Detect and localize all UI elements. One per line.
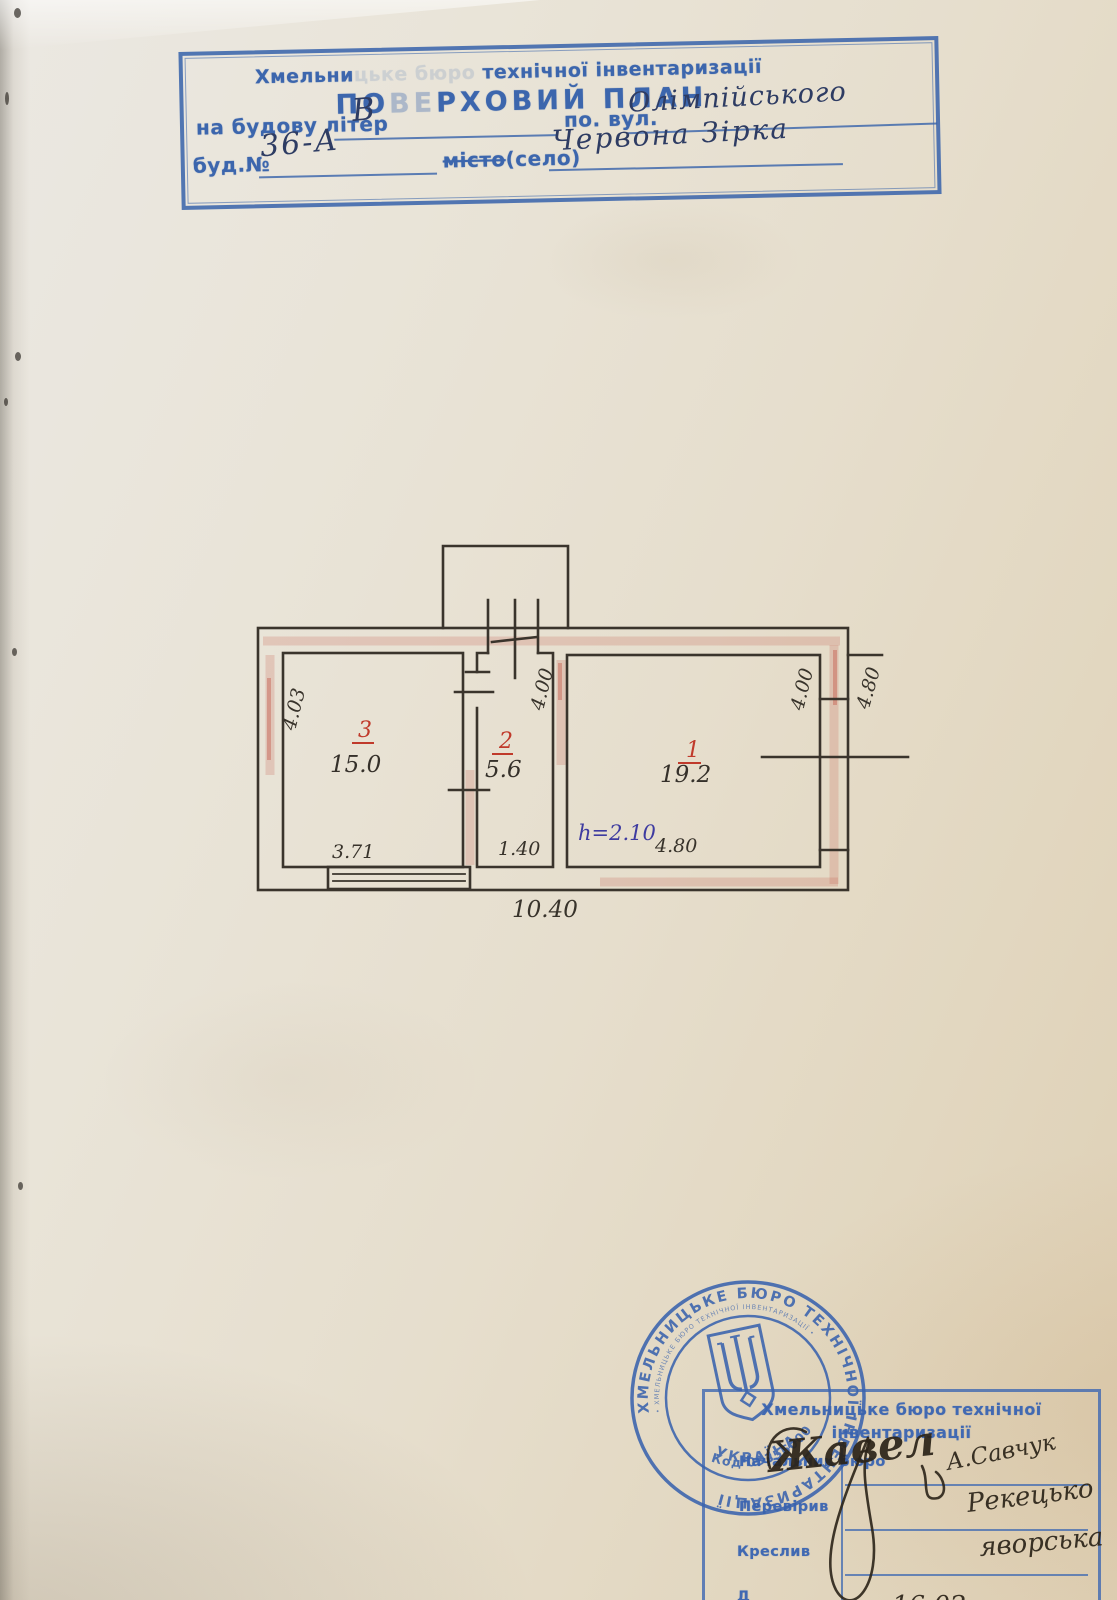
paper-speck: [14, 8, 21, 18]
paper-stain: [100, 980, 480, 1180]
room1-width-dim: 4.80: [654, 835, 697, 857]
room1-height-dim: 4.00: [786, 666, 818, 713]
paper-speck: [18, 1182, 23, 1190]
field-number-label: буд.№: [193, 152, 271, 178]
room-number-underlines: [352, 743, 701, 763]
room2-width-dim: 1.40: [498, 838, 540, 860]
signature-checked: Рекецько: [964, 1474, 1095, 1519]
handwritten-number: 36-А: [259, 123, 341, 165]
room2-area: 5.6: [485, 757, 522, 783]
paper-stain: [540, 200, 800, 320]
room-numbers: 3 2 1: [358, 718, 700, 763]
room3-area: 15.0: [330, 752, 381, 778]
bottom-window: [328, 867, 470, 889]
document-photo: Хмельницьке бюро технічної інвентаризаці…: [0, 0, 1117, 1600]
paper-speck: [15, 352, 21, 361]
field-underline: [334, 134, 556, 141]
exterior-height-dim: 4.80: [852, 665, 885, 713]
org-text-end: технічної інвентаризації: [475, 56, 762, 84]
paper-speck: [12, 648, 17, 656]
signature-date-partial: 16.02: [892, 1591, 966, 1600]
porch-walls: [443, 546, 568, 628]
signature-chief: Жавел: [763, 1416, 938, 1483]
room1-area: 19.2: [660, 762, 711, 788]
signatures-overlay: Жавел А.Савчук Рекецько яворська 16.02: [600, 1270, 1117, 1600]
total-width-dim: 10.40: [512, 897, 578, 923]
field-underline: [259, 173, 437, 179]
floor-plan: 3 2 1 15.0 5.6 19.2 4.03 3.71 4.00 1.40 …: [210, 500, 920, 940]
paper-speck: [5, 92, 9, 105]
signature-chief-note: А.Савчук: [942, 1429, 1058, 1476]
field-underline: [549, 163, 843, 171]
room2-number: 2: [498, 729, 513, 754]
stamp-org-line: Хмельницьке бюро технічної інвентаризаці…: [255, 56, 762, 89]
room3-number: 3: [358, 718, 372, 743]
org-text-faded: цьке бюро: [354, 62, 476, 87]
room3-width-dim: 3.71: [332, 841, 374, 863]
bottom-window-lines: [333, 874, 465, 881]
room-areas: 15.0 5.6 19.2: [330, 752, 711, 788]
paper-top-curl: [0, 0, 540, 50]
room1-number: 1: [686, 738, 700, 763]
org-text-start: Хмельни: [255, 64, 354, 88]
signature-drawn: яворська: [978, 1522, 1105, 1563]
ceiling-height-note: h=2.10: [578, 821, 656, 845]
paper-left-edge: [0, 0, 30, 1600]
paper-speck: [4, 398, 8, 406]
handwritten-building-letter: В: [350, 91, 376, 129]
